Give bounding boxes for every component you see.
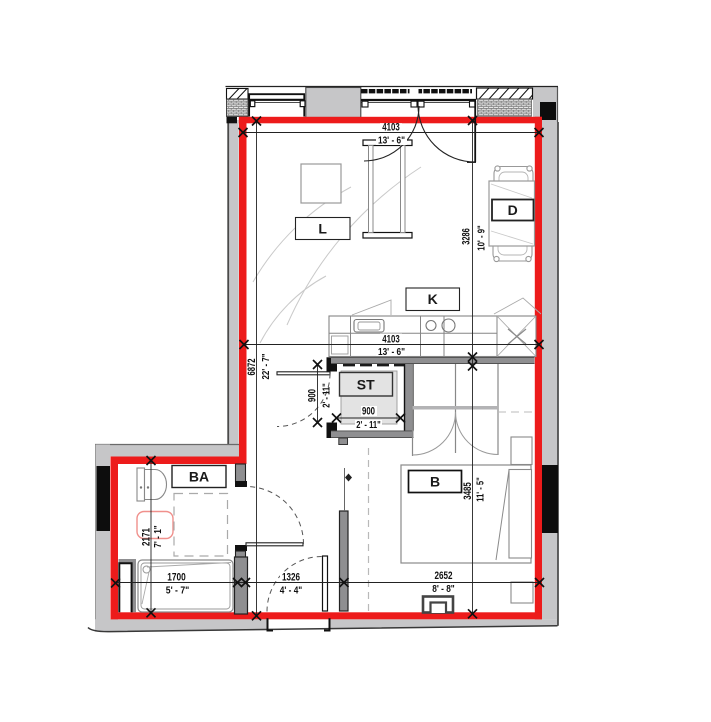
svg-text:8' - 8": 8' - 8" [432, 583, 455, 595]
svg-text:2' - 11": 2' - 11" [356, 419, 381, 431]
svg-text:900: 900 [362, 406, 375, 418]
svg-text:3286: 3286 [461, 228, 473, 245]
svg-text:22' - 7": 22' - 7" [260, 353, 272, 379]
svg-text:1700: 1700 [167, 572, 186, 584]
svg-text:2' - 11": 2' - 11" [321, 383, 333, 408]
svg-text:13' - 6": 13' - 6" [378, 346, 405, 358]
svg-text:K: K [428, 291, 438, 307]
svg-text:900: 900 [307, 389, 319, 402]
svg-text:7' - 1": 7' - 1" [152, 525, 164, 548]
svg-text:5' - 7": 5' - 7" [166, 585, 190, 597]
svg-text:BA: BA [189, 469, 209, 485]
svg-text:4' - 4": 4' - 4" [280, 585, 303, 597]
svg-text:13' - 6": 13' - 6" [378, 135, 405, 147]
svg-text:ST: ST [357, 377, 375, 393]
svg-text:11' - 5": 11' - 5" [475, 477, 487, 502]
svg-text:3485: 3485 [462, 482, 474, 500]
svg-text:4103: 4103 [382, 122, 400, 134]
svg-text:D: D [508, 202, 518, 218]
svg-text:L: L [318, 221, 327, 237]
svg-text:2652: 2652 [435, 570, 453, 582]
svg-text:4103: 4103 [382, 334, 400, 346]
svg-text:10' - 9": 10' - 9" [476, 225, 488, 251]
svg-text:6872: 6872 [246, 359, 258, 376]
svg-text:2171: 2171 [141, 528, 153, 546]
svg-text:1326: 1326 [282, 572, 300, 584]
svg-text:B: B [430, 474, 440, 490]
